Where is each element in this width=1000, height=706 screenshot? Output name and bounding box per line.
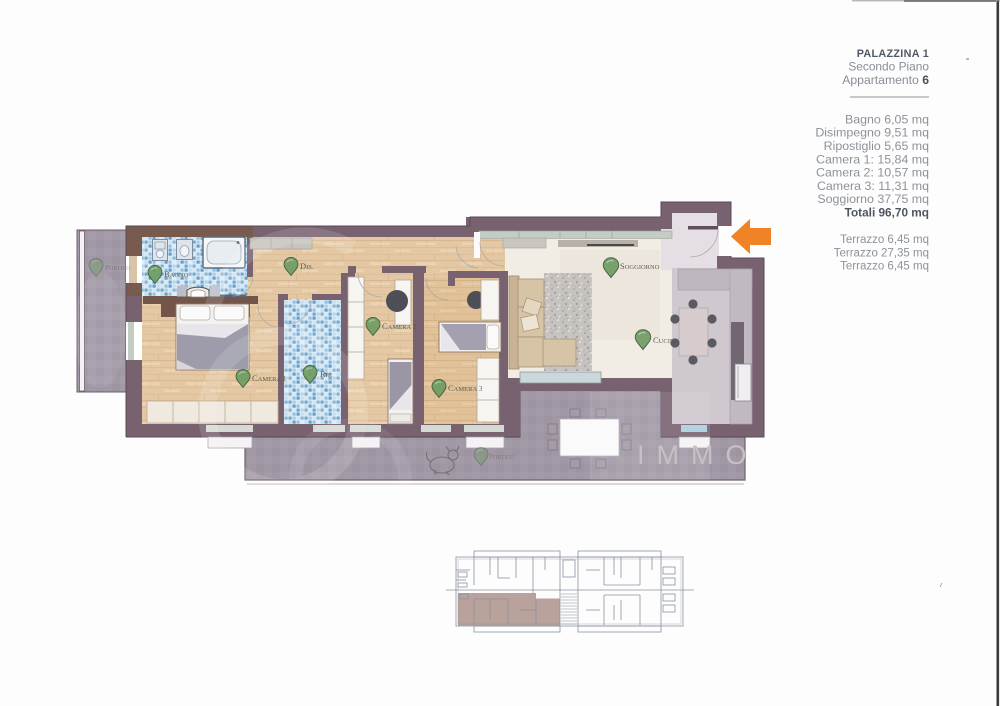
svg-text:Soggiorno 37,75 mq: Soggiorno 37,75 mq (817, 192, 929, 206)
svg-text:Secondo Piano: Secondo Piano (848, 60, 929, 74)
svg-text:Bagno 6,05 mq: Bagno 6,05 mq (845, 112, 929, 126)
svg-text:Terrazzo 27,35 mq: Terrazzo 27,35 mq (834, 247, 929, 259)
svg-text:Totali 96,70 mq: Totali 96,70 mq (845, 206, 929, 220)
svg-text:Disimpegno 9,51 mq: Disimpegno 9,51 mq (815, 126, 929, 140)
svg-text:Terrazzo 6,45 mq: Terrazzo 6,45 mq (840, 261, 929, 273)
svg-text:Camera 3: 11,31 mq: Camera 3: 11,31 mq (817, 179, 929, 193)
svg-text:PALAZZINA 1: PALAZZINA 1 (857, 48, 929, 60)
svg-text:Camera 1: 15,84 mq: Camera 1: 15,84 mq (816, 152, 929, 166)
svg-text:Appartamento 6: Appartamento 6 (842, 73, 929, 87)
svg-text:Terrazzo 6,45 mq: Terrazzo 6,45 mq (840, 234, 929, 246)
svg-text:Ripostiglio 5,65 mq: Ripostiglio 5,65 mq (824, 139, 929, 153)
svg-text:IMMO: IMMO (637, 440, 759, 470)
svg-text:Camera 2: 10,57 mq: Camera 2: 10,57 mq (816, 166, 929, 180)
